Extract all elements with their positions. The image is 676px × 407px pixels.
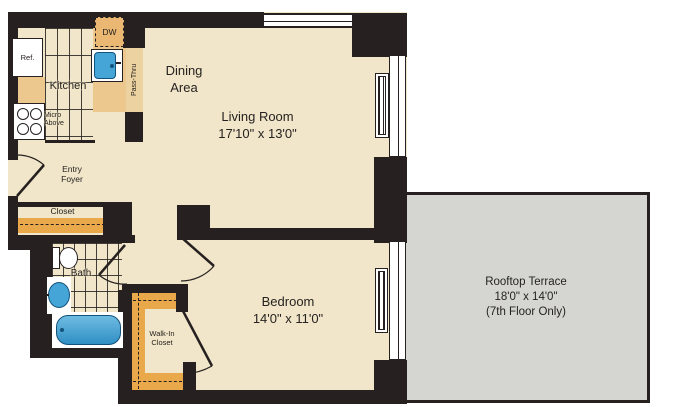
bath-door-leaf — [99, 245, 125, 275]
living-room-dimensions: 17'10" x 13'0" — [185, 125, 330, 142]
bath-label-text: Bath — [71, 268, 92, 279]
closet-label-text: Closet — [50, 206, 74, 216]
pass-thru-label-text: Pass-Thru — [131, 64, 138, 96]
bedroom-name: Bedroom — [208, 293, 368, 310]
living-room-name: Living Room — [185, 108, 330, 125]
floor-plan: Rooftop Terrace 18'0" x 14'0" (7th Floor… — [0, 0, 676, 407]
bath-door-swing — [99, 275, 127, 284]
entry-foyer-label: Entry Foyer — [46, 164, 98, 184]
entry-door-swing — [17, 155, 44, 165]
door-swings-overlay — [0, 0, 676, 407]
dining-area-label: Dining Area — [148, 62, 220, 96]
kitchen-label-text: Kitchen — [50, 80, 87, 92]
bedroom-label: Bedroom 14'0" x 11'0" — [208, 293, 368, 327]
micro-above-label: Micro Above — [44, 112, 84, 128]
bath-label: Bath — [60, 268, 102, 279]
kitchen-label: Kitchen — [40, 80, 96, 92]
micro-label-line2: Above — [44, 120, 84, 128]
dining-label-line2: Area — [148, 79, 220, 96]
living-room-label: Living Room 17'10" x 13'0" — [185, 108, 330, 142]
micro-label-line1: Micro — [44, 112, 84, 120]
entry-foyer-line2: Foyer — [46, 174, 98, 184]
walk-in-line2: Closet — [134, 338, 190, 347]
entry-foyer-line1: Entry — [46, 164, 98, 174]
bedroom-dimensions: 14'0" x 11'0" — [208, 310, 368, 327]
dining-label-line1: Dining — [148, 62, 220, 79]
entry-door-leaf — [17, 165, 44, 196]
closet-label: Closet — [35, 206, 90, 216]
bedroom-door-leaf — [181, 237, 214, 266]
bedroom-door-swing — [181, 266, 214, 281]
pass-thru-label: Pass-Thru — [126, 50, 143, 110]
walk-in-line1: Walk-In — [134, 329, 190, 338]
walk-in-closet-door-swing — [184, 366, 212, 374]
walk-in-closet-label: Walk-In Closet — [134, 329, 190, 347]
